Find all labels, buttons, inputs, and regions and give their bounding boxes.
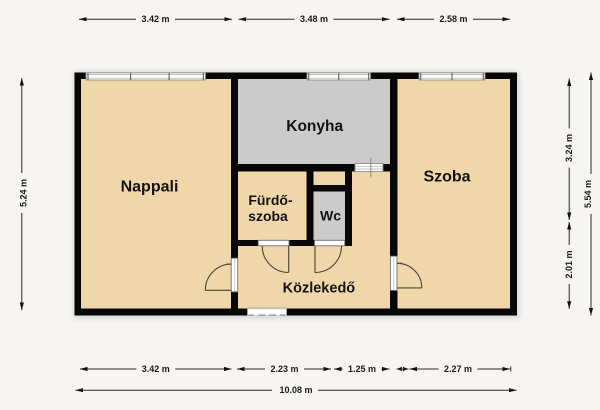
svg-text:Fürdő-: Fürdő-	[248, 192, 293, 208]
svg-text:szoba: szoba	[248, 208, 288, 224]
svg-text:3.42 m: 3.42 m	[141, 14, 169, 24]
svg-text:2.23 m: 2.23 m	[270, 364, 298, 374]
svg-text:Wc: Wc	[320, 208, 341, 224]
svg-text:Nappali: Nappali	[121, 179, 179, 196]
svg-text:5.24 m: 5.24 m	[18, 179, 28, 207]
svg-text:2.01 m: 2.01 m	[564, 250, 574, 278]
svg-text:5.54 m: 5.54 m	[583, 180, 593, 208]
svg-text:3.24 m: 3.24 m	[564, 134, 574, 162]
svg-text:10.08 m: 10.08 m	[279, 385, 312, 395]
svg-text:Konyha: Konyha	[286, 118, 343, 135]
svg-text:Szoba: Szoba	[423, 168, 470, 185]
svg-text:2.58 m: 2.58 m	[439, 14, 467, 24]
svg-text:3.42 m: 3.42 m	[142, 364, 170, 374]
svg-text:2.27 m: 2.27 m	[444, 364, 472, 374]
svg-text:Közlekedő: Közlekedő	[283, 280, 356, 296]
svg-text:1.25 m: 1.25 m	[348, 364, 376, 374]
svg-text:3.48 m: 3.48 m	[300, 14, 328, 24]
